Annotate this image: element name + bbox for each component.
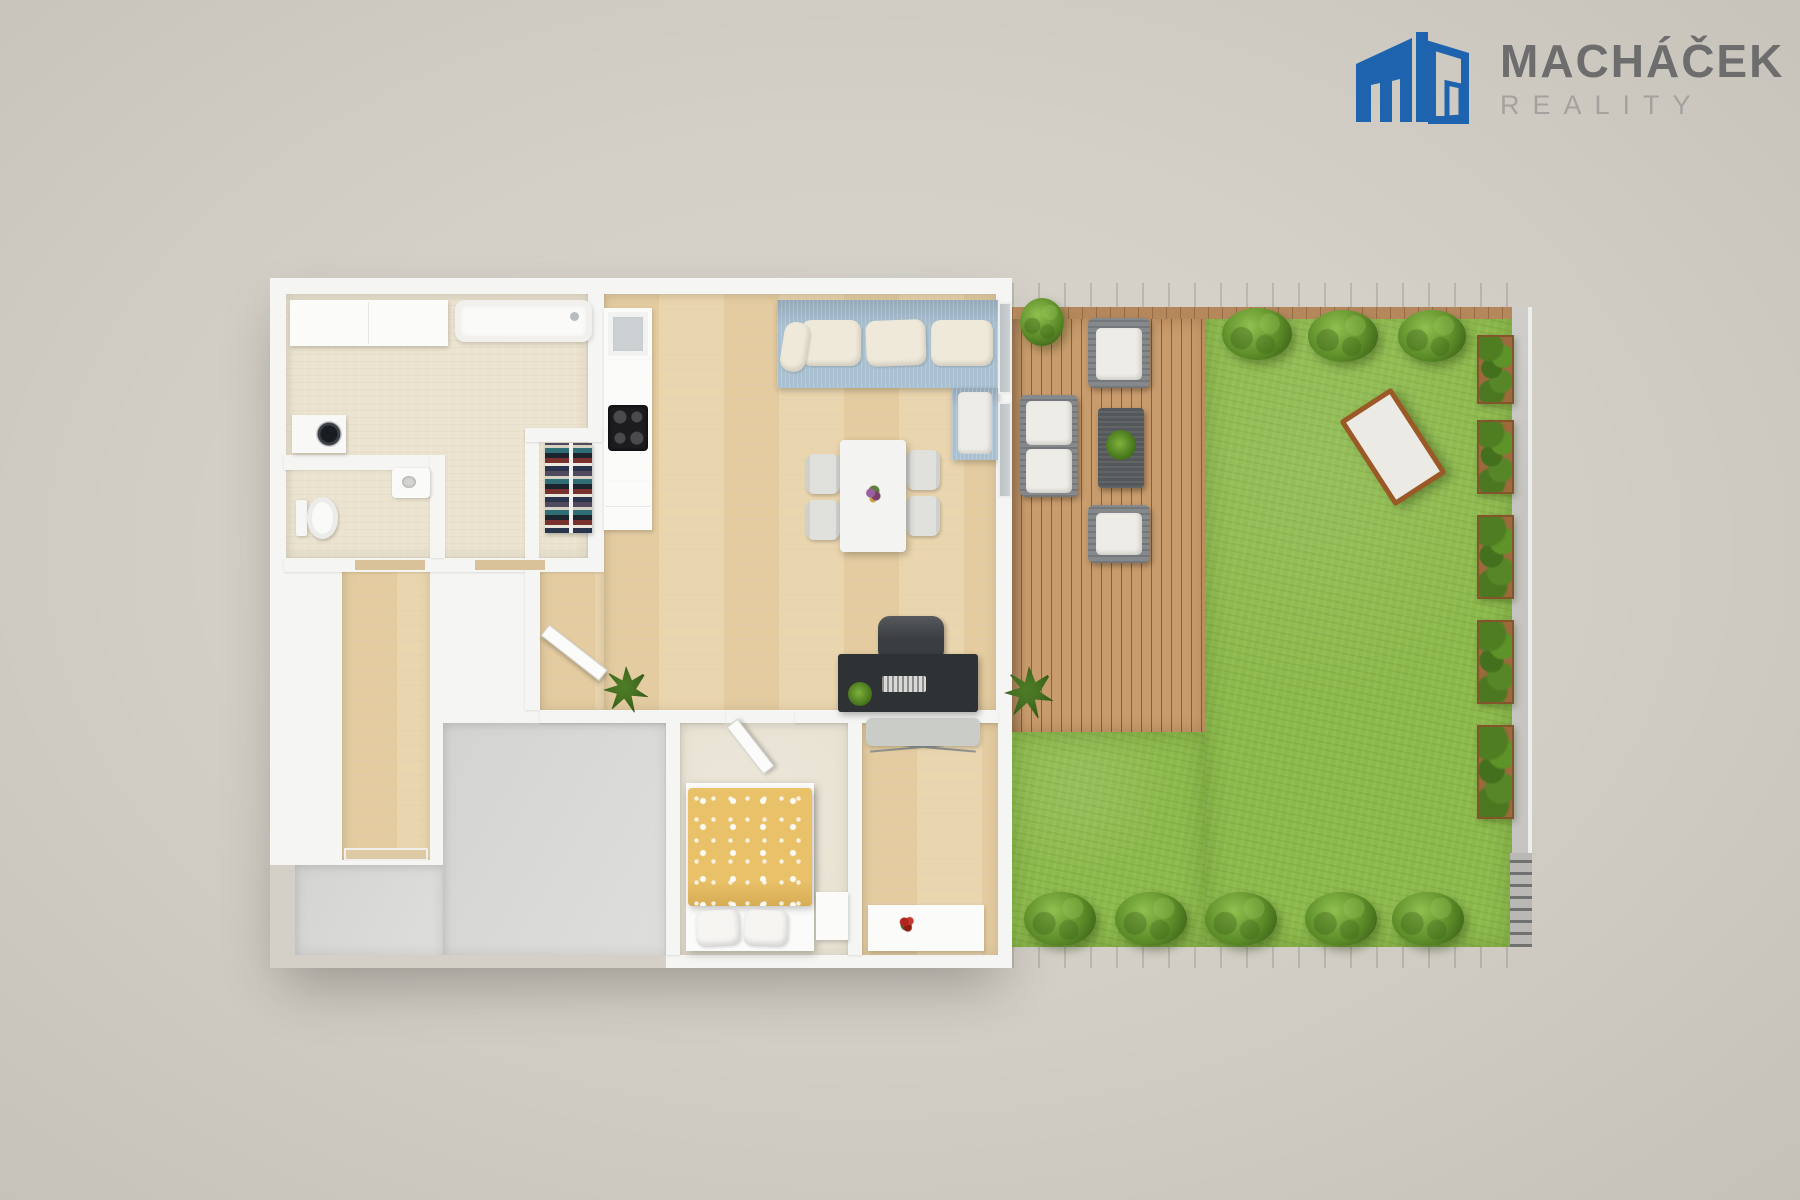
bed-pillow [695, 909, 741, 947]
cabinet-seam [368, 302, 369, 344]
wall [525, 428, 602, 442]
cooktop [608, 405, 648, 451]
armchair-cushion [1096, 328, 1142, 380]
washing-machine [292, 415, 346, 453]
sofa-cushion [801, 320, 861, 366]
cabinet-seam [606, 506, 650, 507]
dining-chair [906, 496, 940, 536]
entry-door [344, 848, 428, 861]
bathroom-sink [392, 468, 430, 498]
sliding-glass-door [998, 402, 1012, 498]
door-threshold [355, 560, 425, 570]
shrub [1205, 892, 1277, 946]
shrub [1020, 298, 1064, 346]
toilet-bowl [307, 497, 338, 539]
wall [666, 723, 680, 955]
shrub [1392, 892, 1464, 946]
table-plant [1106, 430, 1136, 460]
raised-planter [1477, 620, 1514, 704]
deck-shadow [1012, 319, 1026, 732]
dresser-flowers [898, 914, 916, 934]
fence-top [1012, 283, 1532, 307]
kitchen-cabinet-glass [608, 312, 648, 356]
raised-planter [1477, 725, 1514, 819]
table-flowers [863, 485, 883, 505]
shrub [1305, 892, 1377, 946]
bathtub [455, 300, 592, 342]
cabinet [290, 300, 448, 346]
floor-hallway [342, 565, 430, 860]
fence-bottom [1012, 947, 1532, 968]
dresser [868, 905, 984, 951]
bathtub-faucet [570, 312, 579, 321]
sofa-cushion [931, 320, 993, 366]
bed-duvet [688, 788, 812, 906]
dining-chair [806, 454, 840, 494]
toilet [296, 500, 307, 536]
logo-title: MACHÁČEK [1500, 38, 1784, 84]
stairs [1510, 853, 1532, 947]
clothes-shelf [545, 443, 592, 533]
background-patch [270, 865, 295, 968]
wall [284, 558, 604, 572]
building-icon [1352, 22, 1472, 124]
dining-chair [906, 450, 940, 490]
sofa-cushion-outdoor [1026, 401, 1072, 445]
dining-chair [806, 500, 840, 540]
wall [525, 428, 539, 558]
floor-empty-room [443, 723, 666, 955]
brand-logo: MACHÁČEK REALITY [1352, 22, 1792, 132]
logo-subtitle: REALITY [1500, 92, 1784, 119]
floor-plan [270, 278, 1532, 968]
sofa-cushion [865, 319, 927, 367]
wall [525, 558, 540, 710]
raised-planter [1477, 420, 1514, 494]
nightstand [816, 892, 848, 940]
wall [430, 455, 445, 558]
armchair-cushion [1096, 513, 1142, 555]
sofa-chaise-cushion [958, 392, 992, 454]
wall [540, 710, 725, 723]
raised-planter [1477, 335, 1514, 404]
shrub [1398, 310, 1466, 362]
wall [848, 723, 862, 955]
shrub [1115, 892, 1187, 946]
desk-plant [848, 682, 872, 706]
keyboard [882, 676, 926, 692]
sofa-cushion-outdoor [1026, 449, 1072, 493]
shrub [1308, 310, 1378, 362]
sliding-glass-door [998, 302, 1012, 394]
lawn [1205, 307, 1512, 947]
shrub [1024, 892, 1096, 946]
side-fence-line [1528, 307, 1532, 947]
bed-pillow [743, 909, 788, 947]
floor-entry-slab [295, 865, 443, 955]
door-threshold [475, 560, 545, 570]
raised-planter [1477, 515, 1514, 599]
background-patch [295, 955, 666, 968]
console-table [866, 718, 980, 746]
shrub [1222, 308, 1292, 360]
